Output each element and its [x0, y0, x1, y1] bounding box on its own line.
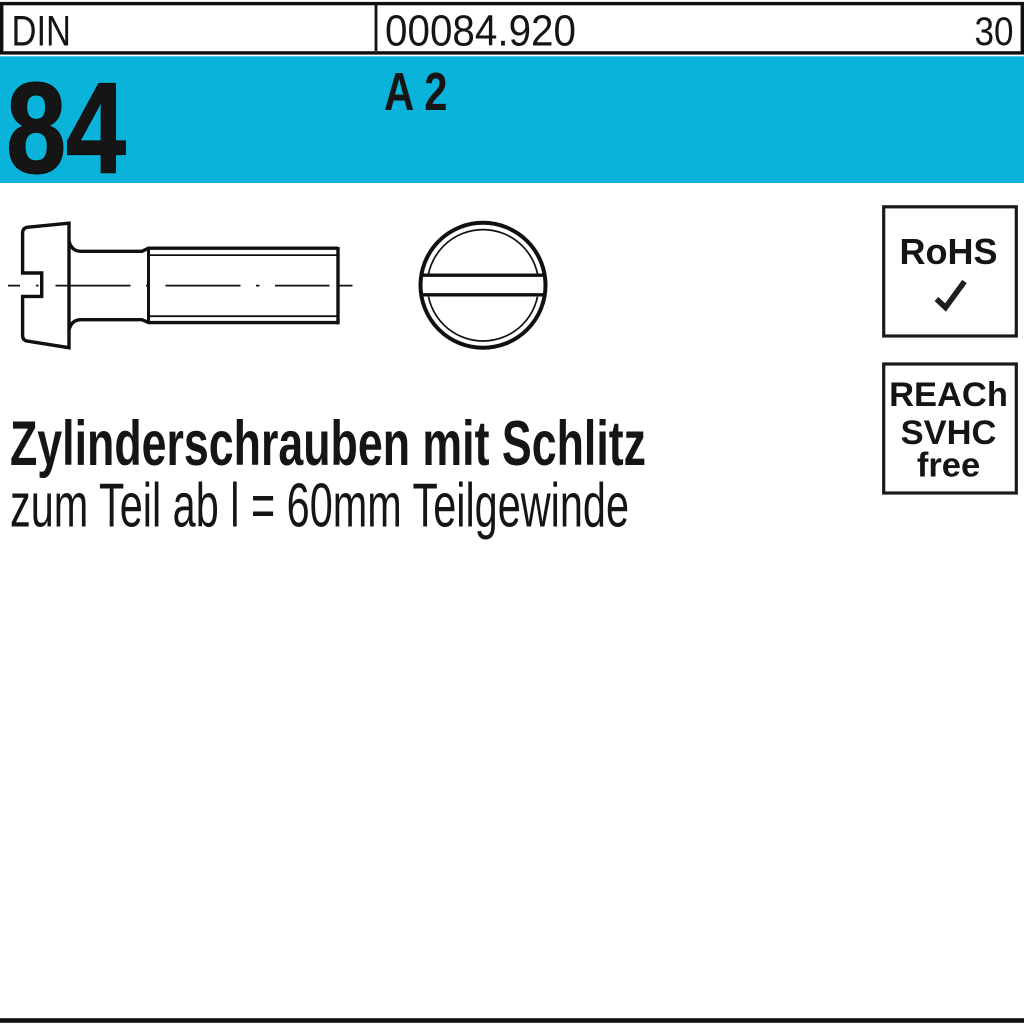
- svg-text:30: 30: [975, 10, 1014, 54]
- svg-text:REACh: REACh: [889, 376, 1008, 414]
- svg-text:00084.920: 00084.920: [385, 8, 576, 56]
- svg-text:A 2: A 2: [384, 63, 448, 122]
- svg-text:RoHS: RoHS: [900, 231, 998, 272]
- svg-text:free: free: [917, 447, 980, 485]
- svg-text:Zylinderschrauben mit Schlitz: Zylinderschrauben mit Schlitz: [10, 409, 646, 479]
- svg-text:84: 84: [6, 56, 126, 200]
- svg-text:DIN: DIN: [12, 7, 72, 55]
- svg-text:zum Teil ab l = 60mm Teilgewin: zum Teil ab l = 60mm Teilgewinde: [10, 472, 629, 541]
